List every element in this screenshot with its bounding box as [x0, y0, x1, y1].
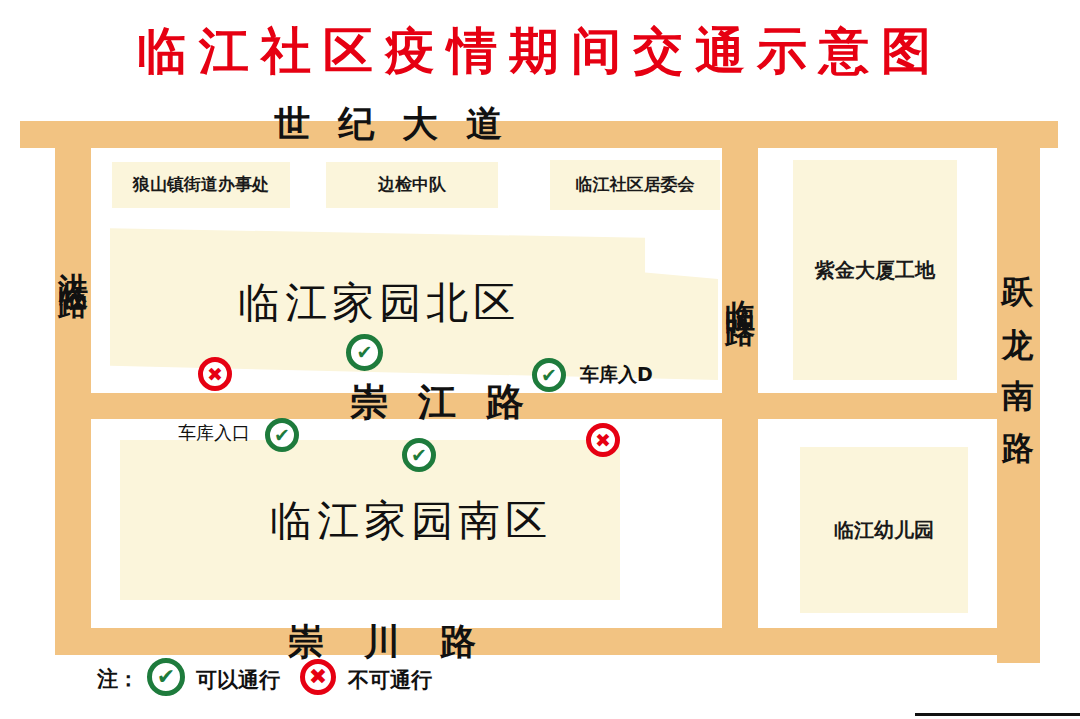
check-glyph: ✔: [411, 446, 427, 465]
legend-note: 注：: [97, 665, 139, 693]
block-label-zijin-site: 紫金大厦工地: [793, 160, 957, 380]
traffic-diagram: 临江社区疫情期间交通示意图 狼山镇街道办事处 边检中队 临江社区居委会 紫金大厦…: [0, 0, 1080, 719]
garage-entrance-label-north: 车库入D: [580, 365, 653, 384]
label-south-district: 临江家园南区: [270, 500, 552, 542]
road-label-honglin: 洪临路: [58, 248, 88, 275]
block-label-community-committee: 临江社区居委会: [550, 160, 720, 210]
x-glyph: ✖: [309, 666, 327, 688]
road-chongchuan: [55, 628, 1005, 655]
pass-icon: ✔: [265, 418, 299, 452]
legend-no-pass-label: 不可通行: [348, 666, 432, 694]
block-label-border-inspection: 边检中队: [326, 162, 498, 208]
block-label-kindergarten: 临江幼儿园: [800, 447, 968, 613]
divider-line: [915, 713, 1080, 716]
no-pass-icon: ✖: [198, 357, 232, 391]
road-label-yuelong-south: 跃龙南路: [1002, 250, 1034, 458]
road-label-linhui: 临晖路: [725, 276, 755, 303]
garage-entrance-label-south: 车库入口: [178, 424, 250, 442]
label-north-district: 临江家园北区: [238, 282, 520, 324]
block-label-langshan-office: 狼山镇街道办事处: [112, 162, 290, 208]
road-label-century-avenue: 世纪大道: [274, 106, 530, 142]
check-glyph: ✔: [541, 366, 557, 385]
legend-no-pass-icon: ✖: [300, 659, 336, 695]
legend-pass-label: 可以通行: [196, 666, 280, 694]
road-label-chongchuan: 崇川路: [288, 624, 516, 660]
road-linhui: [722, 140, 758, 632]
pass-icon: ✔: [346, 334, 383, 371]
road-label-chongjiang: 崇江路: [350, 383, 554, 421]
page-title: 临江社区疫情期间交通示意图: [0, 18, 1080, 85]
check-glyph: ✔: [157, 666, 175, 688]
road-honglin: [55, 121, 91, 654]
x-glyph: ✖: [207, 365, 223, 384]
check-glyph: ✔: [274, 426, 290, 445]
x-glyph: ✖: [595, 431, 611, 450]
pass-icon: ✔: [532, 358, 566, 392]
no-pass-icon: ✖: [586, 423, 620, 457]
road-century-avenue: [20, 121, 1058, 148]
legend-pass-icon: ✔: [147, 658, 185, 696]
pass-icon: ✔: [402, 438, 436, 472]
check-glyph: ✔: [357, 343, 373, 362]
